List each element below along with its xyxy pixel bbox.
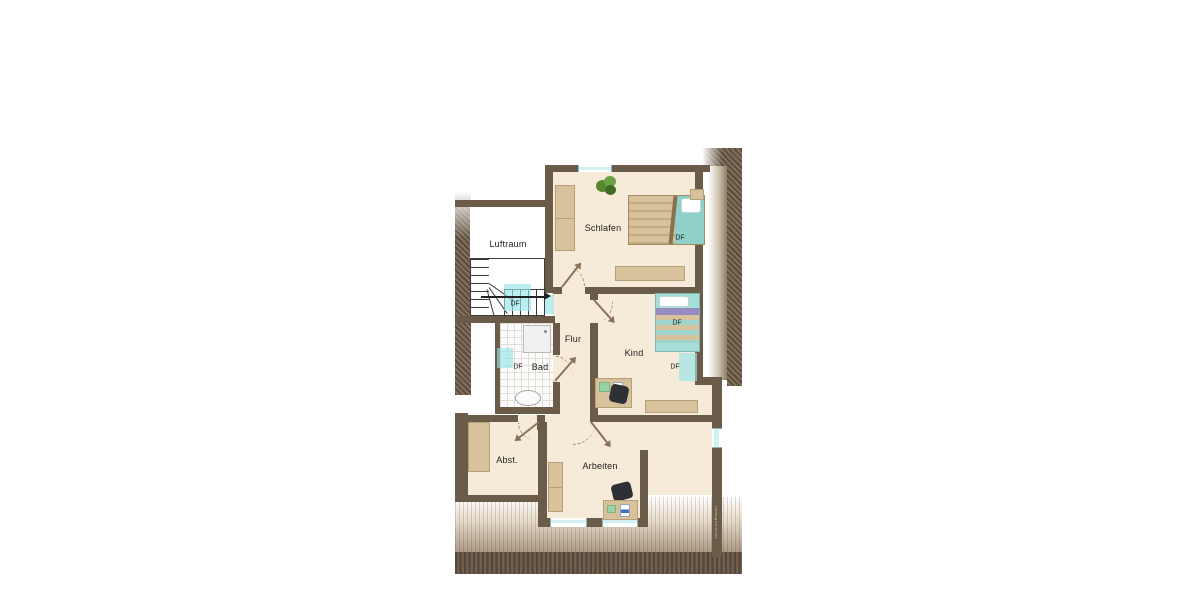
cabinet-abstellraum: [468, 422, 490, 472]
pillow: [659, 296, 689, 307]
roof-window-label-stairs: DF: [510, 301, 519, 308]
wall: [538, 518, 550, 527]
door-opening: [562, 287, 585, 294]
stair-flight-left: [471, 259, 489, 315]
wall: [455, 495, 545, 502]
nightstand: [690, 189, 704, 200]
roof-edge-left-fade: [455, 183, 471, 238]
room-label-schlafen: Schlafen: [585, 223, 622, 233]
room-label-arbeiten: Arbeiten: [582, 461, 617, 471]
room-label-abstellraum: Abst.: [496, 455, 518, 465]
roof-eave-bottom: [455, 552, 742, 574]
shower: [523, 325, 551, 353]
floor-plan: Luftraum Schlafen Flur Kind Bad Abst. Ar…: [455, 148, 755, 583]
office-chair-kind: [608, 383, 629, 404]
sideboard-kind: [645, 400, 698, 413]
sideboard-schlafen: [615, 266, 685, 281]
wall: [545, 165, 710, 172]
wall: [495, 407, 560, 414]
wall: [590, 415, 722, 422]
bed-double-schlafen: [628, 195, 705, 245]
desk-arbeiten: [603, 500, 638, 520]
stair-direction-line: [481, 296, 546, 298]
roof-window-label-bad: DF: [513, 364, 522, 371]
wall: [538, 422, 547, 527]
room-label-flur: Flur: [565, 334, 581, 344]
stair-direction-arrow: [544, 292, 551, 300]
shower-drain: [544, 330, 547, 333]
roof-window-label-kind-upper: DF: [672, 320, 681, 327]
wall: [638, 518, 648, 527]
sink: [515, 390, 541, 406]
wall: [545, 165, 553, 293]
wall: [695, 377, 722, 385]
window-schlafen-top: [578, 165, 612, 172]
room-label-kind: Kind: [625, 348, 644, 358]
pillow-band-purple: [656, 308, 699, 315]
roof-slope-right: [703, 166, 727, 380]
wardrobe-schlafen: [555, 185, 575, 251]
plant-icon: [596, 176, 618, 196]
staircase: [470, 258, 545, 316]
watermark: Immogrundriss: [714, 506, 719, 554]
mattress-stripes: [629, 196, 675, 244]
roof-window-glow-bad: [497, 348, 513, 368]
desk-paper: [620, 504, 630, 517]
room-label-bad: Bad: [532, 362, 549, 372]
wall: [553, 323, 560, 355]
wall: [495, 323, 500, 414]
roof-edge-top-right-fade: [700, 148, 722, 166]
pillow: [681, 198, 701, 213]
wall: [455, 200, 553, 207]
window-right: [712, 428, 722, 448]
floor-plan-page: Luftraum Schlafen Flur Kind Bad Abst. Ar…: [0, 0, 1200, 600]
wall: [455, 413, 468, 497]
room-label-luftraum: Luftraum: [489, 239, 526, 249]
window-dormer-left: [550, 518, 587, 527]
roof-edge-right: [727, 150, 742, 386]
roof-window-glow-kind-lower: [679, 353, 697, 381]
wall: [590, 287, 598, 300]
roof-window-label-kind-lower: DF: [670, 364, 679, 371]
wall: [640, 450, 648, 527]
desk-mat: [607, 505, 616, 513]
wall: [587, 518, 602, 527]
wardrobe-arbeiten: [548, 462, 563, 512]
desk-mat: [599, 382, 610, 392]
wall: [553, 287, 562, 294]
wall: [455, 316, 555, 323]
door-opening: [545, 415, 590, 422]
roof-window-label-schlafen: DF: [675, 235, 684, 242]
